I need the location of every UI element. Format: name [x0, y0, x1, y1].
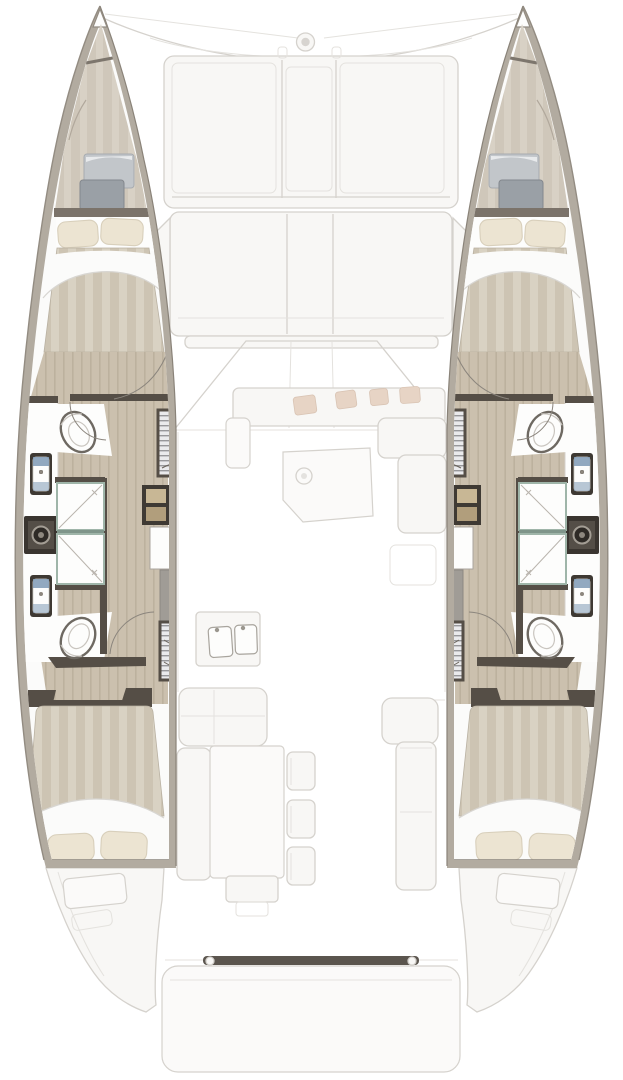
catamaran-floorplan [0, 0, 623, 1080]
saloon [226, 386, 446, 585]
lounge-sofa-side [398, 455, 446, 533]
saloon-table [283, 448, 373, 522]
cockpit-corner-bench [179, 688, 267, 746]
cockpit-bench-starboard-corner [382, 698, 438, 744]
aft-double-berth [28, 706, 164, 863]
cockpit-side-bench [177, 748, 211, 880]
cleat-right [408, 957, 416, 965]
floorplan-canvas [0, 0, 623, 1080]
stern-area [162, 956, 460, 1072]
port-stern-ghost [46, 868, 164, 1012]
cockpit-bench-starboard [396, 742, 436, 890]
lounge-sofa [378, 418, 446, 458]
bow-fitting-center [301, 38, 309, 46]
companionway-stairs [142, 485, 218, 525]
ottoman [390, 545, 436, 585]
wardrobe-forward [158, 410, 212, 476]
cockpit-table [210, 746, 284, 878]
shower-forward [57, 483, 104, 530]
swim-platform [162, 966, 460, 1072]
cockpit-chairs [287, 752, 315, 885]
aft-cockpit [177, 688, 438, 916]
cockpit-step [226, 876, 278, 902]
transom-beam [203, 956, 419, 965]
shower-aft [57, 534, 104, 584]
saloon-table-detail-center [301, 473, 307, 479]
engine-hatch-starboard [496, 873, 561, 909]
foredeck-sun-lounge [164, 47, 458, 208]
washer [24, 516, 58, 554]
engine-hatch-port [63, 873, 128, 909]
sink-aft [30, 575, 52, 617]
sink-forward [30, 453, 52, 495]
forepeak-berth [43, 248, 164, 352]
chart-seat [226, 418, 250, 468]
forward-cockpit-bench [152, 212, 471, 348]
starboard-stern-ghost [459, 868, 577, 1012]
cleat-left [206, 957, 214, 965]
